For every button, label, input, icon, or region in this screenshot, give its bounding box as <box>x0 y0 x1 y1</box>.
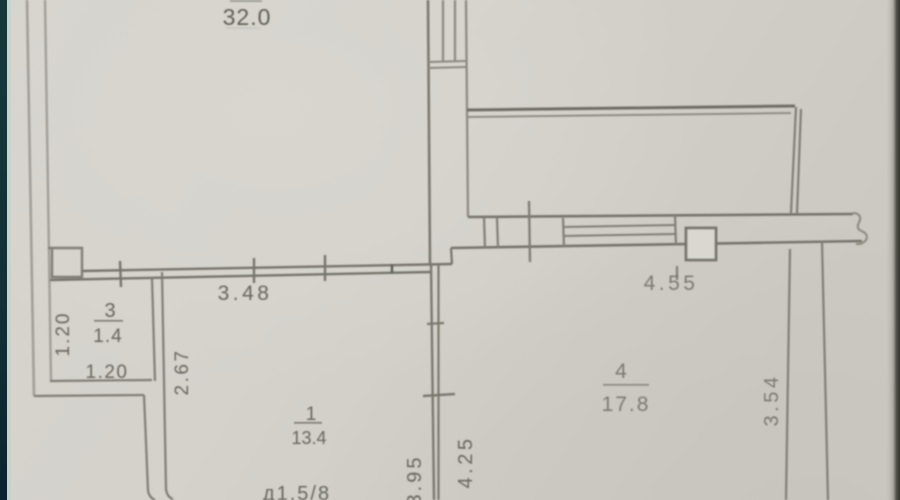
svg-text:4.25: 4.25 <box>455 436 477 489</box>
svg-text:32.0: 32.0 <box>223 4 272 30</box>
svg-text:2.67: 2.67 <box>172 349 193 396</box>
svg-text:3: 3 <box>104 300 115 322</box>
svg-text:4.55: 4.55 <box>644 272 699 295</box>
svg-text:4: 4 <box>615 360 627 383</box>
svg-text:3.54: 3.54 <box>761 374 783 427</box>
svg-text:17.8: 17.8 <box>602 393 651 416</box>
svg-text:13.4: 13.4 <box>291 428 326 448</box>
svg-text:3.95: 3.95 <box>404 455 426 500</box>
svg-text:д1.5/8: д1.5/8 <box>263 483 331 500</box>
svg-text:3.48: 3.48 <box>218 282 273 305</box>
svg-text:1: 1 <box>306 404 317 425</box>
svg-text:1.4: 1.4 <box>93 326 122 347</box>
svg-text:1.20: 1.20 <box>53 312 74 357</box>
svg-text:1.20: 1.20 <box>86 362 129 383</box>
